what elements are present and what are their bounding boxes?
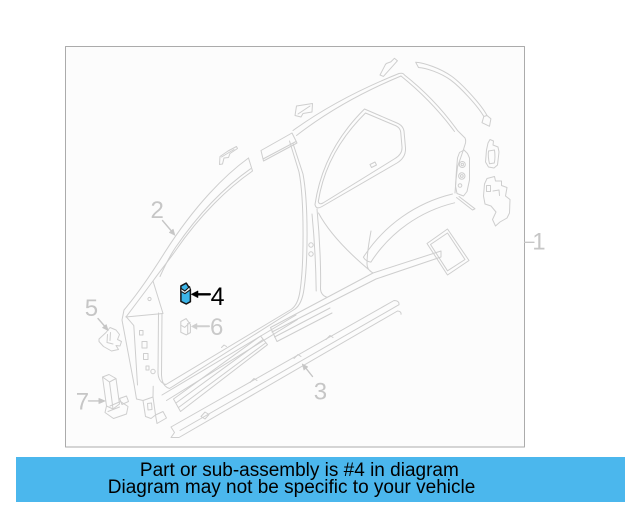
svg-text:2: 2 <box>151 197 164 224</box>
svg-text:7: 7 <box>76 389 89 416</box>
svg-text:5: 5 <box>85 295 98 322</box>
svg-text:4: 4 <box>211 283 225 311</box>
svg-text:3: 3 <box>314 378 327 405</box>
svg-text:6: 6 <box>210 314 223 341</box>
